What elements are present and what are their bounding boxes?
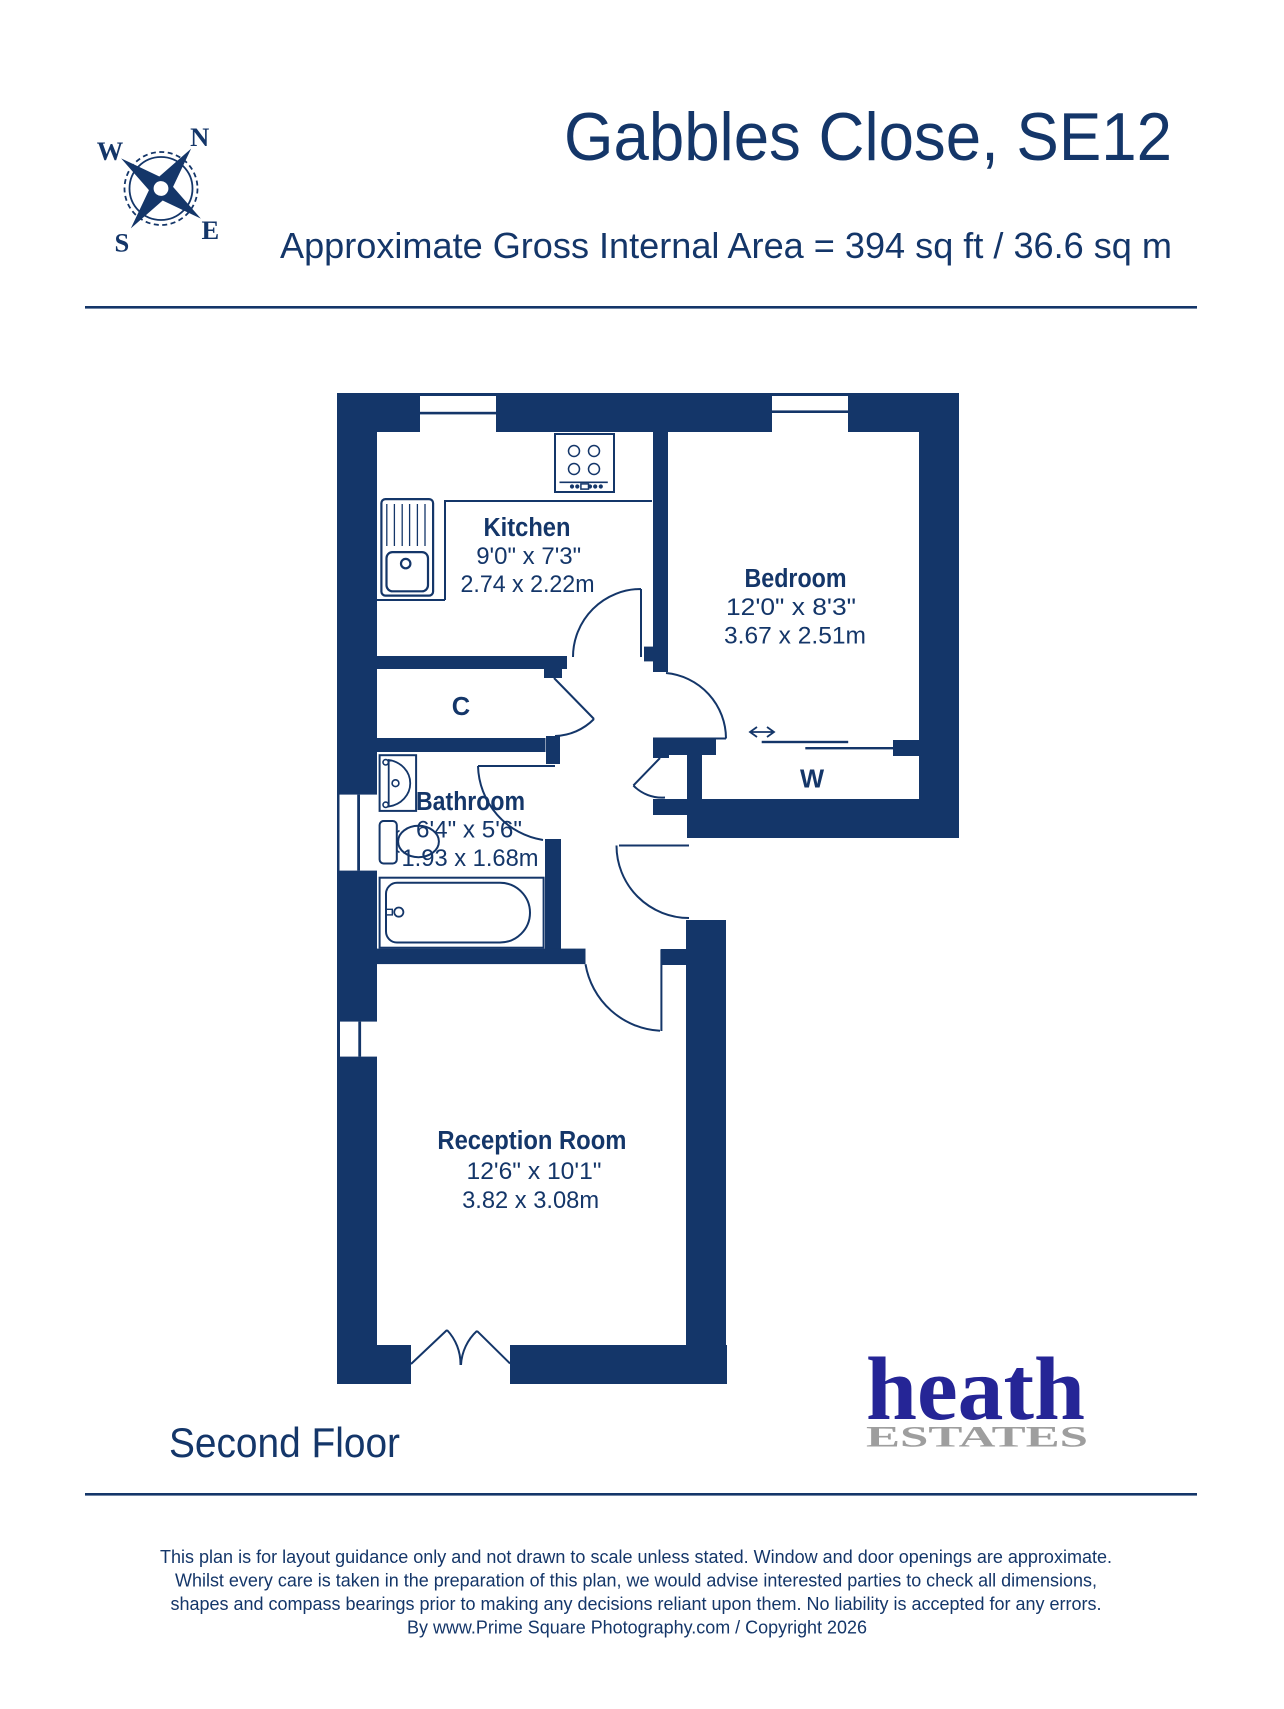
svg-text:W: W: [97, 136, 124, 166]
svg-text:Gabbles Close, SE12: Gabbles Close, SE12: [564, 99, 1172, 175]
svg-text:W: W: [800, 766, 825, 794]
svg-text:This plan is for layout guidan: This plan is for layout guidance only an…: [160, 1546, 1112, 1567]
svg-text:S: S: [115, 228, 130, 258]
svg-text:C: C: [452, 693, 470, 721]
svg-text:By www.Prime Square Photograph: By www.Prime Square Photography.com / Co…: [407, 1617, 867, 1638]
svg-text:12'0" x 8'3": 12'0" x 8'3": [726, 594, 856, 621]
svg-text:Approximate Gross Internal Are: Approximate Gross Internal Area = 394 sq…: [280, 225, 1172, 266]
svg-text:Bathroom: Bathroom: [416, 788, 525, 816]
svg-text:9'0" x 7'3": 9'0" x 7'3": [476, 543, 581, 570]
svg-text:3.82 x 3.08m: 3.82 x 3.08m: [462, 1187, 599, 1214]
svg-text:Bedroom: Bedroom: [745, 565, 847, 593]
svg-text:E: E: [202, 215, 220, 245]
svg-text:ESTATES: ESTATES: [866, 1421, 1088, 1454]
svg-text:Whilst every care is taken in: Whilst every care is taken in the prepar…: [175, 1570, 1097, 1591]
svg-text:12'6" x 10'1": 12'6" x 10'1": [467, 1158, 602, 1185]
svg-text:6'4" x 5'6": 6'4" x 5'6": [416, 817, 522, 844]
svg-text:Kitchen: Kitchen: [484, 514, 571, 542]
svg-text:3.67 x 2.51m: 3.67 x 2.51m: [724, 623, 866, 650]
svg-text:N: N: [190, 122, 209, 152]
svg-text:1.93 x 1.68m: 1.93 x 1.68m: [402, 845, 539, 872]
svg-text:Second Floor: Second Floor: [169, 1419, 400, 1466]
svg-text:2.74 x 2.22m: 2.74 x 2.22m: [461, 571, 595, 598]
svg-text:shapes and compass bearings pr: shapes and compass bearings prior to mak…: [171, 1593, 1102, 1614]
svg-text:Reception Room: Reception Room: [437, 1127, 626, 1155]
